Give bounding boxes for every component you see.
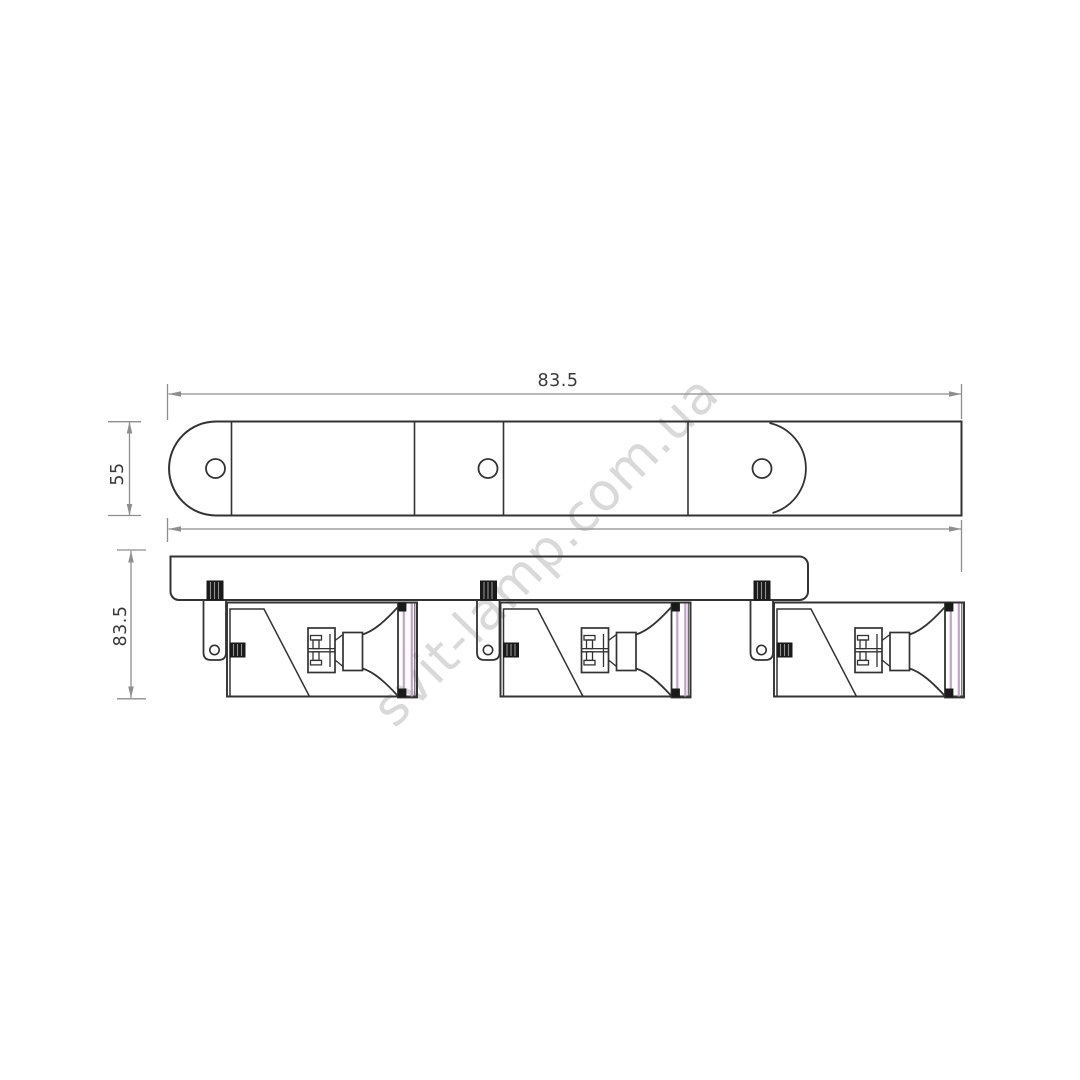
- mounting-hole: [753, 459, 772, 478]
- mounting-hole: [479, 459, 498, 478]
- spotlight-unit: [751, 581, 965, 698]
- spotlight-unit: [204, 581, 418, 698]
- plan-width-label: 83.5: [538, 371, 579, 391]
- mounting-bar-plan: [169, 422, 961, 516]
- side-height-label: 83.5: [111, 606, 131, 647]
- dimension-plan-width-lower: [169, 526, 962, 532]
- top-plan-view: [169, 422, 961, 516]
- spotlight-unit: [477, 581, 691, 698]
- bar-section-dividers: [232, 422, 689, 516]
- technical-drawing-page: svit-lamp.com.ua: [0, 0, 1080, 1080]
- plan-depth-label: 55: [108, 462, 128, 485]
- mounting-hole: [206, 459, 225, 478]
- swivel-arc: [770, 423, 806, 513]
- dimension-plan-width: [168, 384, 962, 572]
- fixture-drawing: [0, 0, 1080, 1080]
- side-elevation-view: [171, 557, 965, 698]
